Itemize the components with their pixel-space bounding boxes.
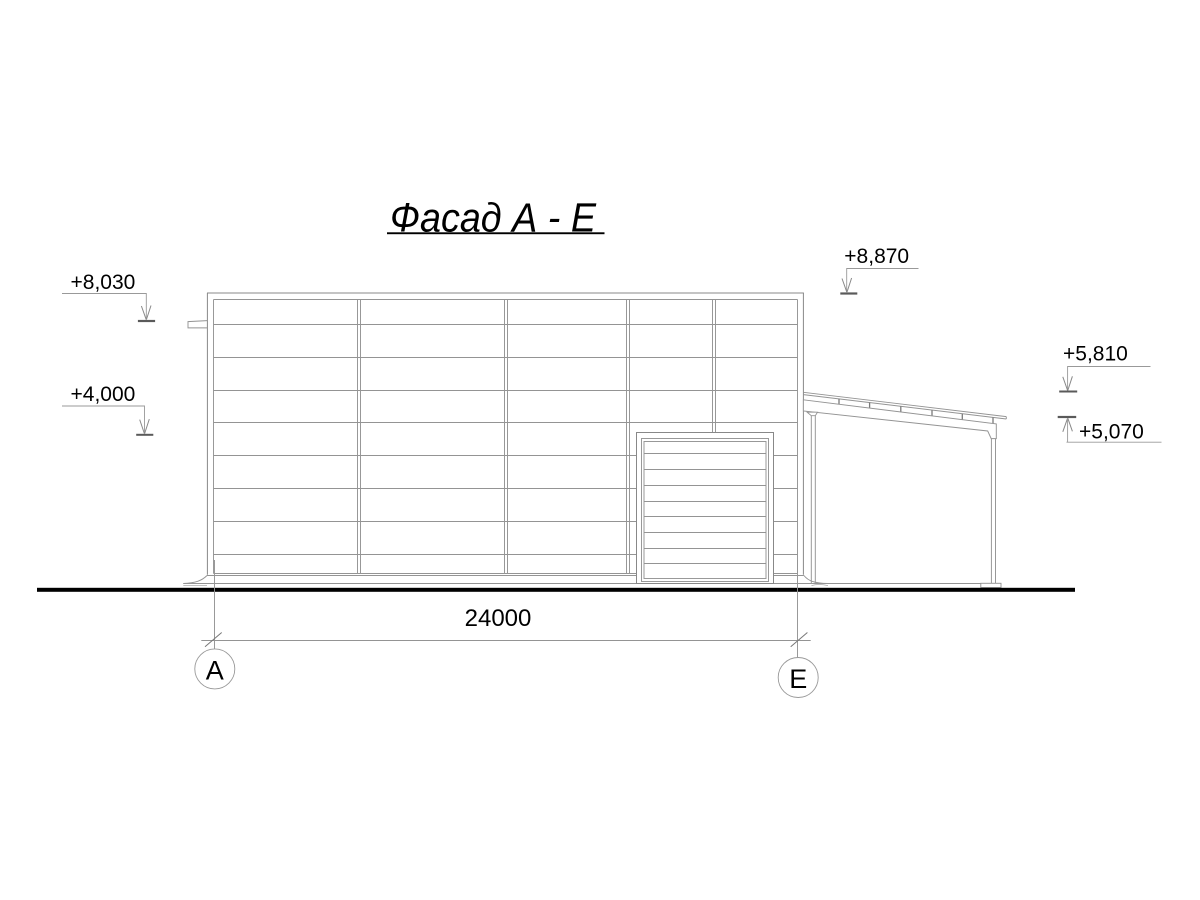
svg-text:Е: Е [789, 664, 807, 694]
svg-text:+8,870: +8,870 [844, 245, 909, 268]
svg-text:+4,000: +4,000 [71, 383, 136, 406]
svg-text:24000: 24000 [465, 605, 532, 632]
svg-text:А: А [206, 656, 224, 686]
svg-text:+5,070: +5,070 [1079, 421, 1144, 444]
svg-text:+8,030: +8,030 [71, 271, 136, 294]
svg-text:+5,810: +5,810 [1063, 342, 1128, 365]
